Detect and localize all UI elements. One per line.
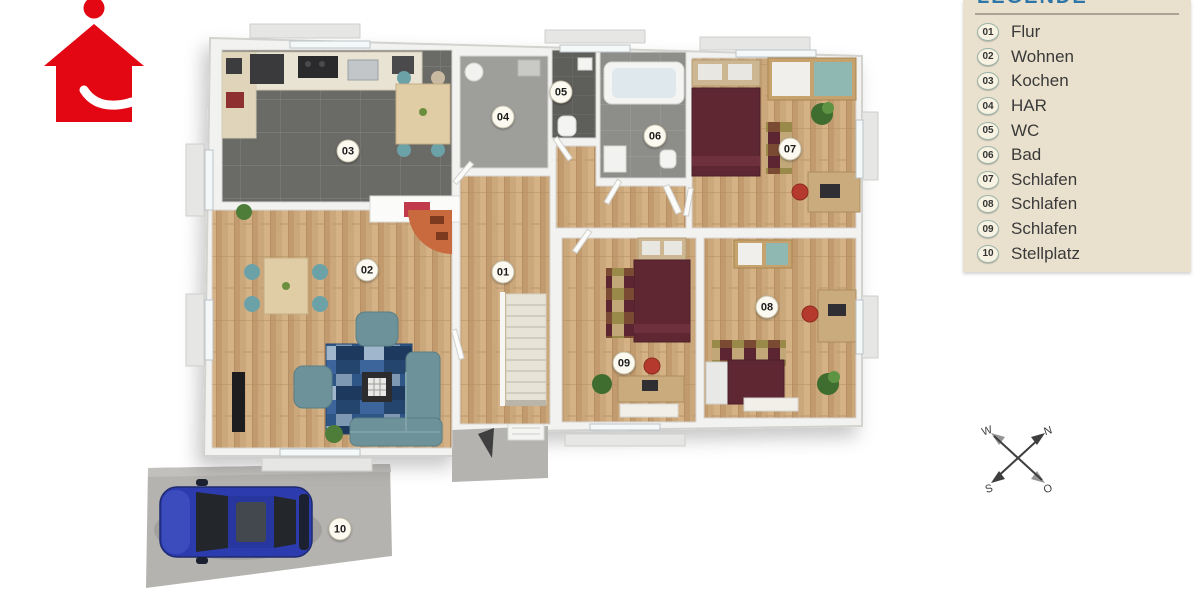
room-label-04: 04 xyxy=(492,106,515,129)
legend-item-bad: 06 Bad xyxy=(963,143,1191,168)
logo-house-body xyxy=(56,62,132,122)
legend-item-stellplatz: 10 Stellplatz xyxy=(963,241,1191,266)
legend-num-badge: 07 xyxy=(977,171,999,189)
room-label-10: 10 xyxy=(329,518,352,541)
legend-item-schlafen-09: 09 Schlafen xyxy=(963,217,1191,242)
legend-num-badge: 04 xyxy=(977,97,999,115)
logo-roof xyxy=(44,24,144,66)
legend-num-badge: 01 xyxy=(977,23,999,41)
legend-item-wc: 05 WC xyxy=(963,118,1191,143)
legend-item-label: Flur xyxy=(1011,22,1040,42)
legend-item-label: Schlafen xyxy=(1011,219,1077,239)
compass-south-label: S xyxy=(984,482,995,496)
legend-num-badge: 05 xyxy=(977,122,999,140)
legend-item-label: Bad xyxy=(1011,145,1041,165)
legend-item-schlafen-07: 07 Schlafen xyxy=(963,168,1191,193)
room-label-05: 05 xyxy=(550,81,573,104)
staircase xyxy=(500,292,546,406)
compass-west-label: W xyxy=(980,424,994,439)
room-label-01: 01 xyxy=(492,261,515,284)
legend-item-wohnen: 02 Wohnen xyxy=(963,45,1191,70)
legend-num-badge: 08 xyxy=(977,195,999,213)
legend-item-har: 04 HAR xyxy=(963,94,1191,119)
room-label-08: 08 xyxy=(756,296,779,319)
legend-num-badge: 10 xyxy=(977,245,999,263)
legend-num-badge: 02 xyxy=(977,48,999,66)
kitchen-dining-set xyxy=(396,71,450,157)
legend-num-badge: 03 xyxy=(977,72,999,90)
floorplan-page: W N S O 01 02 03 04 05 06 07 08 09 10 LE… xyxy=(0,0,1200,600)
legend-item-label: WC xyxy=(1011,121,1039,141)
legend-title: LEGENDE xyxy=(977,0,1191,9)
legend-item-label: Schlafen xyxy=(1011,194,1077,214)
legend-item-label: Schlafen xyxy=(1011,170,1077,190)
legend-item-label: Kochen xyxy=(1011,71,1069,91)
room-label-03: 03 xyxy=(337,140,360,163)
legend-item-schlafen-08: 08 Schlafen xyxy=(963,192,1191,217)
room-label-02: 02 xyxy=(356,259,379,282)
room-label-09: 09 xyxy=(613,352,636,375)
legend-item-label: HAR xyxy=(1011,96,1047,116)
legend-item-label: Wohnen xyxy=(1011,47,1074,67)
room-label-07: 07 xyxy=(779,138,802,161)
compass-east-label: O xyxy=(1042,482,1054,496)
legend-num-badge: 06 xyxy=(977,146,999,164)
room-label-06: 06 xyxy=(644,125,667,148)
logo-dot xyxy=(84,0,105,19)
legend-divider xyxy=(975,13,1179,15)
legend-item-label: Stellplatz xyxy=(1011,244,1080,264)
red-house-logo xyxy=(40,0,150,126)
legend-panel: LEGENDE 01 Flur 02 Wohnen 03 Kochen 04 H… xyxy=(963,0,1191,272)
legend-item-flur: 01 Flur xyxy=(963,20,1191,45)
compass-icon: W N S O xyxy=(980,424,1054,497)
legend-num-badge: 09 xyxy=(977,220,999,238)
car-top-view-icon xyxy=(154,479,322,564)
legend-item-kochen: 03 Kochen xyxy=(963,69,1191,94)
compass-north-label: N xyxy=(1042,424,1053,438)
